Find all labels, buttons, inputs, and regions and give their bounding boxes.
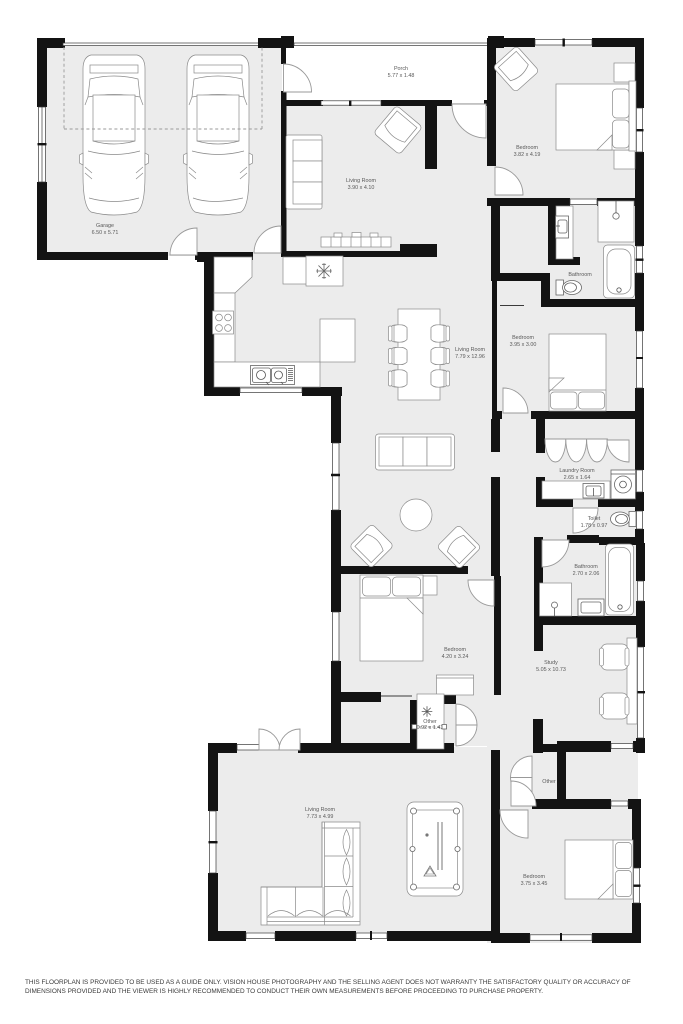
svg-text:3.75 x 3.45: 3.75 x 3.45 xyxy=(521,881,548,887)
svg-text:4.20 x 3.24: 4.20 x 3.24 xyxy=(442,654,469,660)
svg-text:0.92 x 1.43: 0.92 x 1.43 xyxy=(417,725,444,731)
svg-text:DIMENSIONS PROVIDED AND THE VI: DIMENSIONS PROVIDED AND THE VIEWER IS HI… xyxy=(25,988,543,995)
svg-text:Living Room: Living Room xyxy=(346,178,376,184)
svg-text:5.77 x 1.48: 5.77 x 1.48 xyxy=(388,73,415,79)
svg-text:2.70 x 2.06: 2.70 x 2.06 xyxy=(573,571,600,577)
svg-text:Bedroom: Bedroom xyxy=(444,647,466,653)
svg-text:THIS FLOORPLAN IS PROVIDED TO: THIS FLOORPLAN IS PROVIDED TO BE USED AS… xyxy=(25,979,631,986)
svg-text:6.50 x 5.71: 6.50 x 5.71 xyxy=(92,230,119,236)
svg-text:Study: Study xyxy=(544,660,558,666)
svg-text:5.05 x 10.73: 5.05 x 10.73 xyxy=(536,667,566,673)
svg-text:3.82 x 4.19: 3.82 x 4.19 xyxy=(514,152,541,158)
svg-text:1.78 x 0.97: 1.78 x 0.97 xyxy=(581,523,608,529)
svg-text:Other: Other xyxy=(542,779,556,785)
svg-text:Garage: Garage xyxy=(96,223,114,229)
svg-text:Bedroom: Bedroom xyxy=(516,145,538,151)
svg-text:7.73 x 4.99: 7.73 x 4.99 xyxy=(307,814,334,820)
svg-text:Bedroom: Bedroom xyxy=(512,335,534,341)
svg-text:7.79 x 12.96: 7.79 x 12.96 xyxy=(455,354,485,360)
svg-text:Bedroom: Bedroom xyxy=(523,874,545,880)
svg-text:3.90 x 4.10: 3.90 x 4.10 xyxy=(348,185,375,191)
svg-text:Living Room: Living Room xyxy=(305,807,335,813)
svg-text:Bathroom: Bathroom xyxy=(574,564,598,570)
svg-text:Living Room: Living Room xyxy=(455,347,485,353)
svg-text:Porch: Porch xyxy=(394,66,408,72)
svg-text:Toilet: Toilet xyxy=(588,516,601,522)
svg-text:2.65 x 1.64: 2.65 x 1.64 xyxy=(564,475,591,481)
svg-text:3.95 x 3.00: 3.95 x 3.00 xyxy=(510,342,537,348)
svg-text:Laundry Room: Laundry Room xyxy=(559,468,595,474)
svg-text:Bathroom: Bathroom xyxy=(568,272,592,278)
